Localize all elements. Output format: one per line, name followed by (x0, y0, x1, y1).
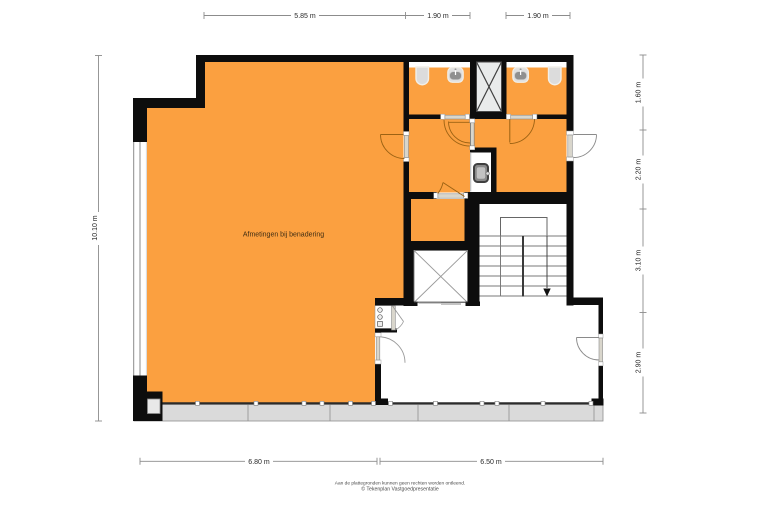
svg-text:3.10 m: 3.10 m (636, 250, 643, 272)
svg-text:10.10 m: 10.10 m (92, 215, 99, 240)
svg-text:1.90 m: 1.90 m (427, 13, 449, 20)
svg-text:Afmetingen bij benadering: Afmetingen bij benadering (243, 232, 324, 239)
svg-text:1.90 m: 1.90 m (527, 13, 549, 20)
svg-text:© Tekenplan Vastgoedpresentati: © Tekenplan Vastgoedpresentatie (361, 486, 439, 493)
svg-text:6.80 m: 6.80 m (248, 459, 270, 466)
svg-text:5.85 m: 5.85 m (294, 13, 316, 20)
svg-text:2.20 m: 2.20 m (636, 159, 643, 181)
svg-text:1.60 m: 1.60 m (636, 82, 643, 104)
svg-text:2.90 m: 2.90 m (636, 352, 643, 374)
svg-text:6.50 m: 6.50 m (480, 459, 502, 466)
